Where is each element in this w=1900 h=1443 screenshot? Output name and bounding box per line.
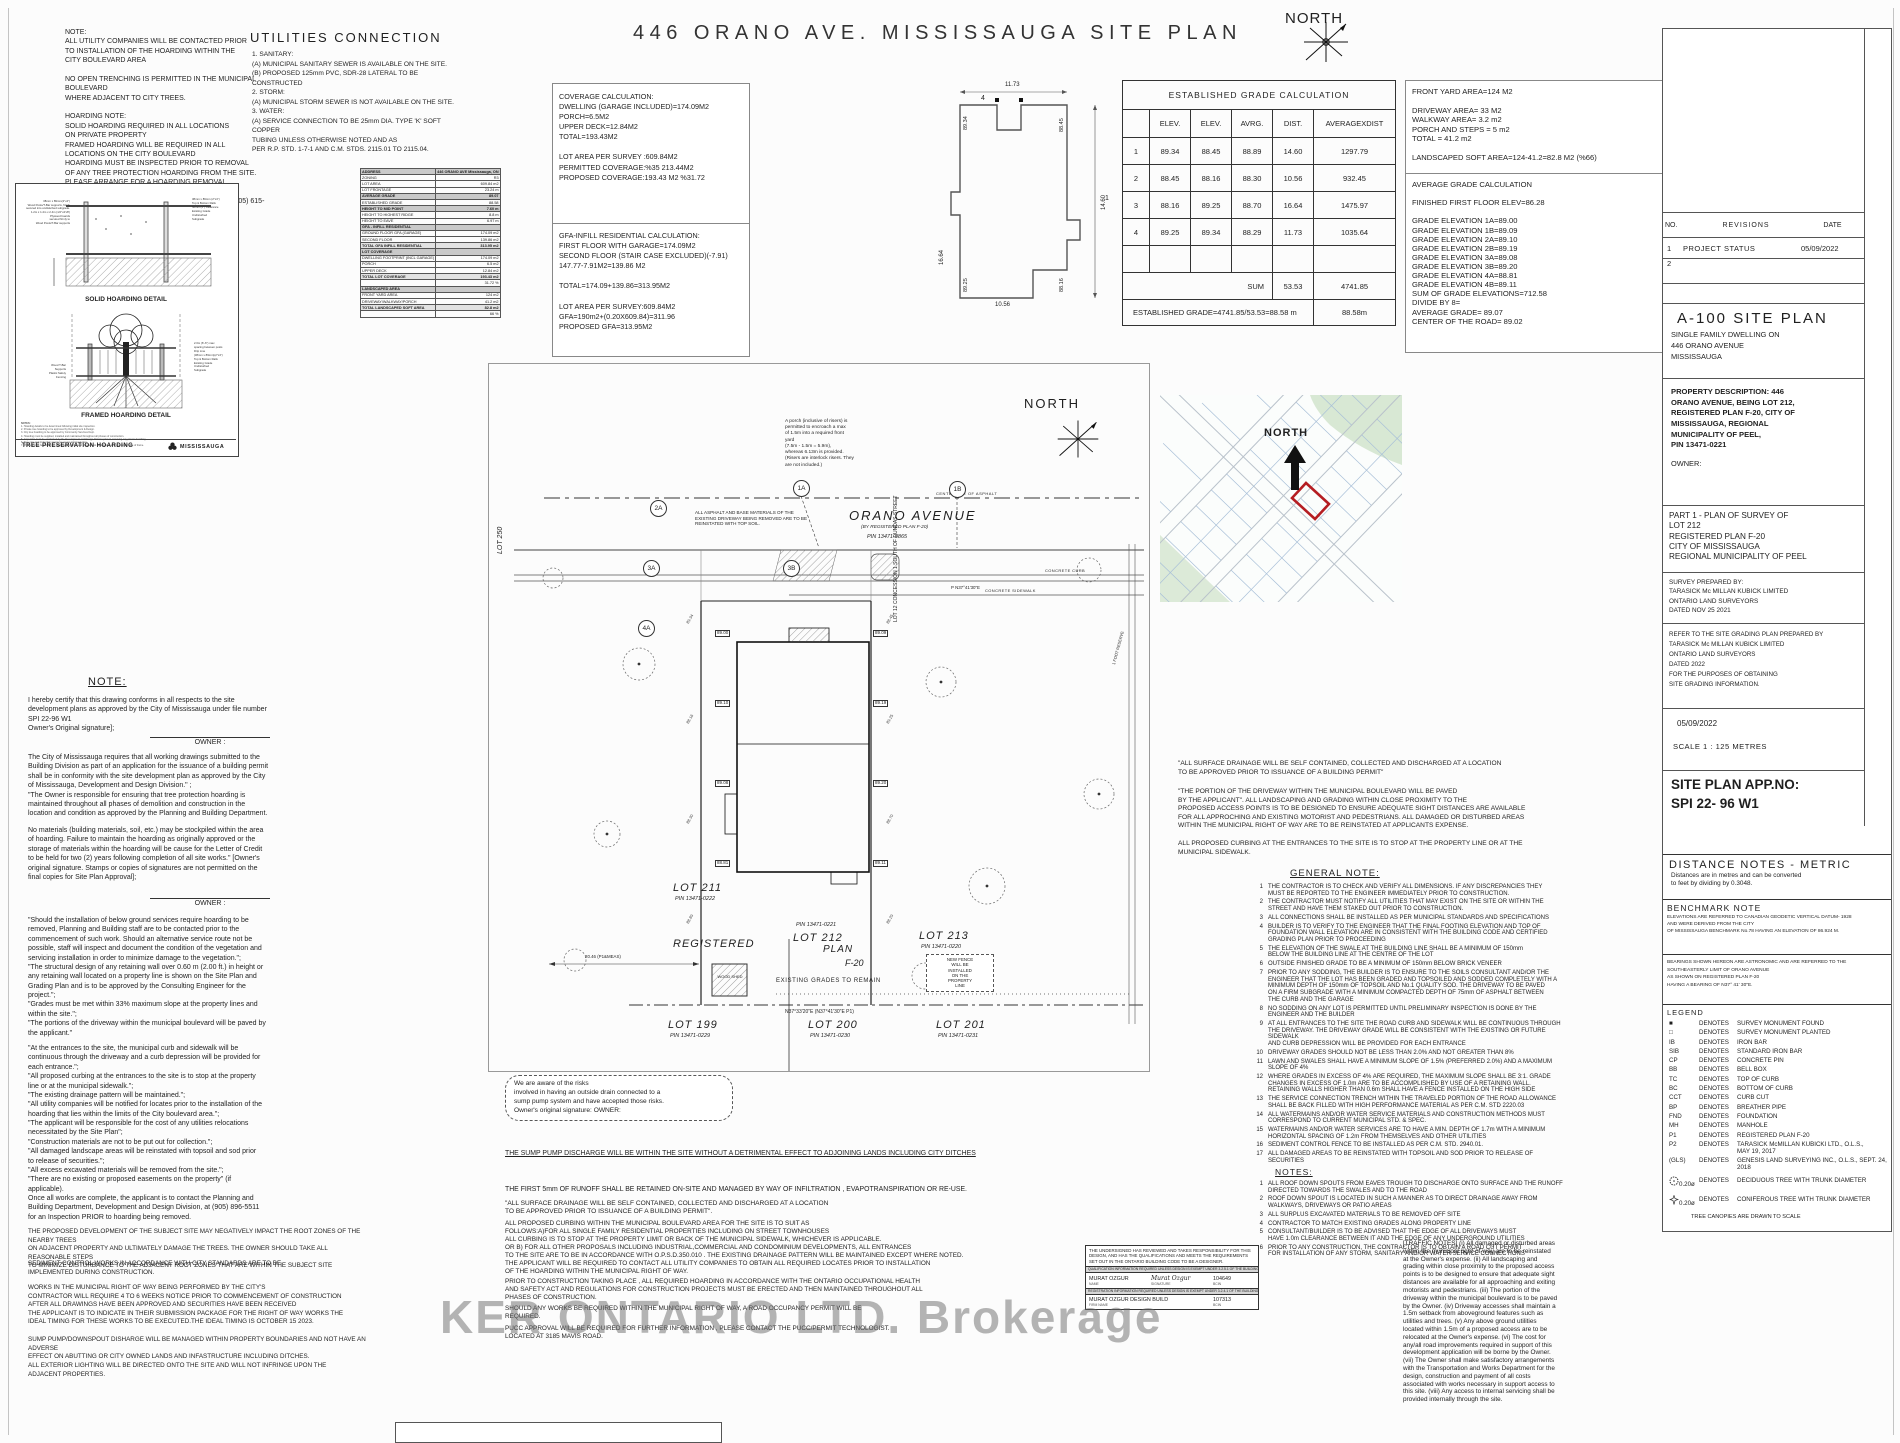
general-note-item: 16SEDIMENT CONTROL FENCE TO BE INSTALLED… — [1253, 1142, 1565, 1149]
brokerage-watermark: KER ONTARIO LTD. Brokerage — [440, 1290, 1162, 1344]
street-pin: PIN 13471-0865 — [867, 534, 907, 540]
legend-denotes: DENOTES — [1699, 1103, 1733, 1112]
owner-signature-line-1: OWNER : — [150, 737, 270, 746]
legend-tree-coniferous: 0.20ø DENOTES CONIFEROUS TREE WITH TRUNK… — [1663, 1195, 1891, 1208]
grade-sum-label: SUM — [1123, 273, 1273, 300]
legend-row: P2 DENOTES TARASICK McMILLAN KUBICKI LTD… — [1669, 1140, 1891, 1156]
grade-table-row: 189.3488.45 88.8914.601297.79 — [1123, 138, 1396, 165]
legend-footer: TREE CANOPIES ARE DRAWN TO SCALE — [1663, 1208, 1891, 1220]
plan-compass-icon — [1054, 416, 1102, 462]
lot-212-label: LOT 212 — [793, 932, 843, 944]
grade-chip-3b: 89.20 — [873, 780, 888, 787]
general-notes-list: 1THE CONTRACTOR IS TO CHECK AND VERIFY A… — [1253, 884, 1565, 1167]
legend-denotes: DENOTES — [1699, 1084, 1733, 1093]
solid-hoarding-label: SOLID HOARDING DETAIL — [56, 296, 196, 303]
coverage-calculation: COVERAGE CALCULATION: DWELLING (GARAGE I… — [553, 84, 749, 224]
surface-drainage-note: "ALL SURFACE DRAINAGE WILL BE SELF CONTA… — [505, 1200, 1065, 1216]
grade-footer: ESTABLISHED GRADE=4741.85/53.53=88.58 m — [1123, 300, 1314, 326]
benchmark-title: BENCHMARK NOTE — [1663, 900, 1891, 913]
general-note-item: 10DRIVEWAY GRADES SHOULD NOT BE LESS THA… — [1253, 1050, 1565, 1057]
lot-213-label: LOT 213 — [919, 930, 969, 942]
rev2-no: 2 — [1663, 259, 1671, 268]
legend-denotes: DENOTES — [1699, 1019, 1733, 1028]
revision-row-2: 2 — [1663, 259, 1864, 284]
legend-row: BC DENOTES BOTTOM OF CURB — [1669, 1084, 1891, 1093]
tree-hoarding-detail-box: 38mm x 89mm(2"x4") Wood Posts/T-Bar supp… — [15, 183, 239, 457]
general-note-item: 5THE ELEVATION OF THE SWALE AT THE BUILD… — [1253, 946, 1565, 959]
grade-chip-4b: 89.11 — [873, 860, 888, 867]
legend-denotes: DENOTES — [1699, 1156, 1733, 1172]
average-grade-calc: AVERAGE GRADE CALCULATION FINISHED FIRST… — [1406, 174, 1663, 332]
footprint-dim-top: 11.73 — [1005, 82, 1020, 88]
footprint-elev-ne: 88.45 — [1059, 118, 1065, 132]
title-block-panel: NO. REVISIONS DATE 1 PROJECT STATUS 05/0… — [1662, 28, 1892, 1232]
footprint-point-1: 1 — [1105, 195, 1109, 202]
sheet-right-border — [1893, 8, 1894, 1435]
asphalt-note: ALL ASPHALT AND BASE MATERIALS OF THE EX… — [695, 510, 811, 527]
lot-212-pin: PIN 13471-0221 — [796, 922, 836, 928]
solid-hoarding-right-labels: 38mm x 89mm (2"x4") Top & Bottom Rails 5… — [192, 198, 236, 221]
left-note-p5: "At the entrances to the site, the munic… — [28, 1044, 343, 1222]
legend-denotes: DENOTES — [1699, 1112, 1733, 1121]
general-note-item: 12WHERE GRADES IN EXCESS OF 4% ARE REQUI… — [1253, 1074, 1565, 1094]
gfa-calculation: GFA-INFILL RESIDENTIAL CALCULATION: FIRS… — [553, 224, 749, 339]
lot-211-pin: PIN 13471-0222 — [675, 896, 715, 902]
legend-row: ■ DENOTES SURVEY MONUMENT FOUND — [1669, 1019, 1891, 1028]
fence-note: NEW FENCE WILL BE INSTALLED ON THE PROPE… — [926, 954, 994, 992]
site-plan-sheet: 446 ORANO AVE. MISSISSAUGA SITE PLAN NOR… — [0, 0, 1900, 1443]
traffic-notes: [TRAFFIC NOTES] (i) All damaged or distu… — [1403, 1240, 1659, 1404]
grade-sum-total: 4741.85 — [1314, 273, 1396, 300]
part1-cell: PART 1 - PLAN OF SURVEY OF LOT 212 REGIS… — [1663, 506, 1864, 573]
legend-denotes: DENOTES — [1699, 1056, 1733, 1065]
framed-hoarding-left-labels: Wood T-Bar Supports Plastic Safety Fenci… — [18, 364, 66, 380]
notes-heading: NOTES: — [1275, 1167, 1313, 1177]
grade-col-elev1: ELEV. — [1150, 110, 1191, 138]
legend-tree-deciduous: 0.20ø DENOTES DECIDUOUS TREE WITH TRUNK … — [1663, 1176, 1891, 1189]
legend-row: TC DENOTES TOP OF CURB — [1669, 1075, 1891, 1084]
rev1-date: 05/09/2022 — [1801, 244, 1839, 253]
grade-col-avrg: AVRG. — [1232, 110, 1273, 138]
street-name: ORANO AVENUE — [849, 508, 977, 523]
bearing-bottom: N37°33'20"E (N37°41'30"E P1) — [785, 1009, 854, 1015]
legend-section: LEGEND ■ DENOTES SURVEY MONUMENT FOUND □… — [1663, 1004, 1891, 1232]
general-note-item: 7PRIOR TO ANY SODDING, THE BUILDER IS TO… — [1253, 970, 1565, 1004]
footprint-elev-se: 88.16 — [1059, 278, 1065, 292]
rev1-desc: PROJECT STATUS — [1683, 244, 1801, 253]
footprint-dim-left: 16.64 — [939, 250, 945, 265]
grade-footer-value: 88.58m — [1314, 300, 1396, 326]
bearing-top: P N37°41'30"E — [951, 585, 980, 590]
centerline-label: CENTERLINE OF ASPHALT — [936, 491, 997, 496]
qualification-header: THE UNDERSIGNED HAS REVIEWED AND TAKES R… — [1086, 1246, 1258, 1266]
benchmark-body: ELEVATIONS ARE REFERRED TO CANADIAN GEOD… — [1663, 913, 1891, 939]
note-item: 4CONTRACTOR TO MATCH EXISTING GRADES ALO… — [1253, 1221, 1565, 1228]
grade-table-row — [1123, 246, 1396, 273]
owner-signature-line-2: OWNER : — [150, 898, 270, 907]
legend-denotes: DENOTES — [1699, 1065, 1733, 1074]
refer-text: REFER TO THE SITE GRADING PLAN PREPARED … — [1663, 624, 1864, 690]
grade-chip-2b: 89.19 — [873, 700, 888, 707]
mid-note-3: ALL PROPOSED CURBING AT THE ENTRANCES TO… — [1178, 840, 1664, 857]
zoning-row: 66 % — [361, 311, 501, 317]
map-north-label: NORTH — [1264, 427, 1308, 439]
legend-denotes: DENOTES — [1699, 1093, 1733, 1102]
grade-col-dist: DIST. — [1273, 110, 1314, 138]
wood-shed-label: WOOD SHED — [715, 974, 745, 979]
revisions-no-col: NO. — [1663, 222, 1687, 229]
runoff-note: THE FIRST 5mm OF RUNOFF SHALL BE RETAINE… — [505, 1186, 967, 1193]
revisions-date-col: DATE — [1805, 222, 1860, 229]
note-item: 3ALL SURPLUS EXCAVATED MATERIALS TO BE R… — [1253, 1212, 1565, 1219]
lot-201-pin: PIN 13471-0231 — [938, 1033, 978, 1039]
legend-denotes: DENOTES — [1699, 1038, 1733, 1047]
framed-hoarding-right-labels: 2.0m (6'-6") max spacing between posts D… — [194, 342, 236, 373]
legend-denotes: DENOTES — [1699, 1047, 1733, 1056]
sump-risk-cloud: We are aware of the risks involved in ha… — [505, 1075, 733, 1121]
legend-denotes: DENOTES — [1699, 1140, 1733, 1156]
date-scale-cell: 05/09/2022 SCALE 1 : 125 METRES — [1663, 709, 1864, 771]
legend-row: BB DENOTES BELL BOX — [1669, 1065, 1891, 1074]
general-notes-heading: GENERAL NOTE: — [1290, 868, 1380, 879]
legend-row: FND DENOTES FOUNDATION — [1669, 1112, 1891, 1121]
general-note-item: 1THE CONTRACTOR IS TO CHECK AND VERIFY A… — [1253, 884, 1565, 897]
legend-row: CP DENOTES CONCRETE PIN — [1669, 1056, 1891, 1065]
grade-chip-1a: 89.00 — [715, 630, 730, 637]
general-note-item: 17ALL DAMAGED AREAS TO BE REINSTATED WIT… — [1253, 1151, 1565, 1164]
revisions-col: REVISIONS — [1687, 222, 1805, 229]
distance-notes-body: Distances are in metres and can be conve… — [1663, 871, 1891, 893]
legend-denotes: DENOTES — [1699, 1028, 1733, 1037]
page-title: 446 ORANO AVE. MISSISSAUGA SITE PLAN — [633, 22, 1242, 45]
utilities-list: 1. SANITARY: (A) MUNICIPAL SANITARY SEWE… — [252, 50, 467, 155]
lot-200-pin: PIN 13471-0230 — [810, 1033, 850, 1039]
grade-table-row: 489.2589.34 88.2911.731035.64 — [1123, 219, 1396, 246]
lot-211-label: LOT 211 — [673, 882, 722, 894]
footprint-elev-nw: 89.34 — [963, 116, 969, 130]
left-note-p10: ALL EXTERIOR LIGHTING WILL BE DIRECTED O… — [28, 1362, 373, 1379]
plan-word-label: PLAN — [823, 944, 853, 955]
benchmark-section: BENCHMARK NOTE ELEVATIONS ARE REFERRED T… — [1663, 899, 1891, 939]
curbing-note: ALL PROPOSED CURBING WITHIN THE MUNICIPA… — [505, 1220, 1125, 1276]
registered-label: REGISTERED — [673, 938, 755, 950]
general-note-item: 14ALL WATERMAINS AND/OR WATER SERVICE MA… — [1253, 1112, 1565, 1125]
marker-1a: 1A — [793, 480, 810, 497]
note-item: 1ALL ROOF DOWN SPOUTS FROM EAVES TROUGH … — [1253, 1181, 1565, 1194]
legend-row: BP DENOTES BREATHER PIPE — [1669, 1103, 1891, 1112]
grade-sum-dist: 53.53 — [1273, 273, 1314, 300]
framed-hoarding-label: FRAMED HOARDING DETAIL — [51, 412, 201, 419]
left-note-p3: No materials (building materials, soil, … — [28, 826, 338, 882]
lot-201-label: LOT 201 — [936, 1019, 986, 1031]
zoning-matrix-table: ADDRESS446 ORANO AVE Mississauga, ONZONI… — [360, 168, 501, 318]
legend-denotes: DENOTES — [1699, 1121, 1733, 1130]
marker-2a: 2A — [650, 500, 667, 517]
general-note-item: 15WATERMAINS AND/OR WATER SERVICES ARE T… — [1253, 1127, 1565, 1140]
signature-label: SIGNATURE — [1151, 1282, 1213, 1286]
solid-hoarding-left-labels: 38mm x 89mm(2"x4") Wood Posts/T-Bar supp… — [18, 200, 70, 225]
general-note-item: 4BUILDER IS TO VERIFY TO THE ENGINEER TH… — [1253, 924, 1565, 944]
established-grade-table: ESTABLISHED GRADE CALCULATION ELEV. ELEV… — [1122, 80, 1396, 326]
legend-row: CCT DENOTES CURB CUT — [1669, 1093, 1891, 1102]
sheet-number-cell: A-100 SITE PLAN SINGLE FAMILY DWELLING O… — [1663, 304, 1864, 379]
legend-row: P1 DENOTES REGISTERED PLAN F-20 — [1669, 1131, 1891, 1140]
grade-chip-4a: 88.81 — [715, 860, 730, 867]
rev1-no: 1 — [1663, 244, 1683, 253]
sheet-left-border — [8, 8, 9, 1435]
bearings-note: BEARINGS SHOWN HEREON ARE ASTRONOMIC AND… — [1663, 955, 1891, 993]
sidewalk-label: CONCRETE SIDEWALK — [985, 588, 1036, 593]
grade-table-row: 388.1689.25 88.7016.641475.97 — [1123, 192, 1396, 219]
survey-text: SURVEY PREPARED BY: TARASICK Mc MILLAN K… — [1663, 573, 1864, 615]
deciduous-tree-icon — [1669, 1176, 1679, 1186]
sheet-subtitle: SINGLE FAMILY DWELLING ON 446 ORANO AVEN… — [1663, 329, 1864, 362]
curb-label: CONCRETE CURB — [1045, 568, 1085, 573]
mississauga-logo-icon — [168, 442, 177, 451]
left-note-p9: SUMP PUMP/DOWNSPOUT DISHARGE WILL BE MAN… — [28, 1336, 373, 1362]
grade-chip-1b: 89.09 — [873, 630, 888, 637]
front-yard-box: FRONT YARD AREA=124 M2 DRIVEWAY AREA= 33… — [1405, 80, 1664, 353]
app-no-cell: SITE PLAN APP.NO: SPI 22- 96 W1 — [1663, 771, 1864, 825]
title-block-empty-box — [1663, 29, 1864, 213]
lot-200-label: LOT 200 — [808, 1019, 858, 1031]
general-note-item: 9AT ALL ENTRANCES TO THE SITE THE ROAD C… — [1253, 1021, 1565, 1048]
existing-grades-label: EXISTING GRADES TO REMAIN — [776, 978, 881, 984]
qualification-band: QUALIFICATION INFORMATION REQUIRED UNLES… — [1086, 1266, 1258, 1273]
marker-3a: 3A — [643, 560, 660, 577]
grade-table-title: ESTABLISHED GRADE CALCULATION — [1123, 81, 1396, 110]
lot-250-label: LOT 250 — [497, 527, 504, 554]
grade-chip-3a: 89.08 — [715, 780, 730, 787]
grade-chip-2a: 89.10 — [715, 700, 730, 707]
general-note-item: 2THE CONTRACTOR MUST NOTIFY ALL UTILITIE… — [1253, 899, 1565, 912]
app-no-value: SPI 22- 96 W1 — [1663, 792, 1864, 811]
left-note-p2: The City of Mississauga requires that al… — [28, 753, 338, 819]
distance-notes-title: DISTANCE NOTES - METRIC — [1663, 855, 1891, 871]
legend-row: IB DENOTES IRON BAR — [1669, 1038, 1891, 1047]
lot-199-label: LOT 199 — [668, 1019, 718, 1031]
dim-2046: 20.46 (P1&MEAS) — [585, 954, 621, 959]
footprint-elev-sw: 89.25 — [963, 278, 969, 292]
revision-row-1: 1 PROJECT STATUS 05/09/2022 — [1663, 238, 1864, 259]
distance-notes-section: DISTANCE NOTES - METRIC Distances are in… — [1663, 854, 1891, 893]
part1-text: PART 1 - PLAN OF SURVEY OF LOT 212 REGIS… — [1663, 506, 1864, 562]
note-item: 2ROOF DOWN SPOUT IS LOCATED IN SUCH A MA… — [1253, 1196, 1565, 1209]
legend-denotes: DENOTES — [1699, 1176, 1733, 1189]
refer-cell: REFER TO THE SITE GRADING PLAN PREPARED … — [1663, 624, 1864, 709]
compass-rose-icon — [1300, 18, 1352, 66]
left-note-heading: NOTE: — [88, 676, 127, 688]
porch-note: A porch (inclusive of risers) is permitt… — [785, 419, 905, 469]
concession-label: LOT 12 CONCESSION 1 SOUTH OF DUNDAS STRE… — [893, 495, 899, 622]
survey-cell: SURVEY PREPARED BY: TARASICK Mc MILLAN K… — [1663, 573, 1864, 624]
legend-row: (GLS) DENOTES GENESIS LAND SURVEYING INC… — [1669, 1156, 1891, 1172]
revisions-header: NO. REVISIONS DATE — [1663, 213, 1864, 238]
left-note-p1: I hereby certify that this drawing confo… — [28, 696, 338, 734]
grade-col-blank — [1123, 110, 1150, 138]
site-plan-geometry — [489, 364, 1149, 1071]
marker-3b: 3B — [783, 560, 800, 577]
issue-date: 05/09/2022 — [1663, 709, 1864, 728]
left-note-p4: "Should the installation of below ground… — [28, 916, 343, 1038]
front-yard-calc: FRONT YARD AREA=124 M2 DRIVEWAY AREA= 33… — [1406, 81, 1663, 174]
mississauga-brand: MISSISSAUGA — [180, 444, 224, 450]
legend-denotes: DENOTES — [1699, 1195, 1733, 1208]
general-note-item: 3ALL CONNECTIONS SHALL BE INSTALLED AS P… — [1253, 915, 1565, 922]
bcin-label: BCIN — [1213, 1282, 1221, 1286]
firm-bcin-label: BCIN — [1213, 1303, 1221, 1307]
legend-row: MH DENOTES MANHOLE — [1669, 1121, 1891, 1130]
sheet-number: A-100 SITE PLAN — [1663, 304, 1864, 329]
property-description-cell: PROPERTY DESCRIPTION: 446 ORANO AVENUE, … — [1663, 379, 1864, 506]
left-note-p7: SEDIMENT CONTROL WORKS IN ACCORDANCE WIT… — [28, 1260, 368, 1277]
legend-denotes: DENOTES — [1699, 1075, 1733, 1084]
footprint-dim-bottom: 10.56 — [995, 302, 1010, 308]
tree-hoarding-footer: TREE PRESERVATION HOARDING — [22, 443, 133, 449]
legend-row: □ DENOTES SURVEY MONUMENT PLANTED — [1669, 1028, 1891, 1037]
left-note-p8: WORKS IN THE MUNICIPAL RIGHT OF WAY BEIN… — [28, 1284, 373, 1327]
general-note-item: 6OUTSIDE FINISHED GRADE TO BE A MINIMUM … — [1253, 961, 1565, 968]
mid-note-2: "THE PORTION OF THE DRIVEWAY WITHIN THE … — [1178, 788, 1664, 831]
utilities-title: UTILITIES CONNECTION — [250, 30, 442, 45]
legend-row: SIB DENOTES STANDARD IRON BAR — [1669, 1047, 1891, 1056]
owner-label: OWNER: — [1663, 451, 1864, 468]
footprint-diagram: 11.73 14.60 10.56 16.64 4 1 89.34 88.45 … — [935, 70, 1120, 325]
f20-label: F-20 — [845, 958, 864, 968]
grade-col-avgxdist: AVERAGEXDIST — [1314, 110, 1396, 138]
sump-discharge-note: THE SUMP PUMP DISCHARGE WILL BE WITHIN T… — [505, 1150, 976, 1157]
coverage-calc-box: COVERAGE CALCULATION: DWELLING (GARAGE I… — [552, 83, 750, 357]
footprint-point-4: 4 — [981, 95, 985, 102]
legend-title: LEGEND — [1663, 1005, 1891, 1019]
general-note-item: 13THE SERVICE CONNECTION TRENCH WITHIN T… — [1253, 1096, 1565, 1109]
mid-note-1: "ALL SURFACE DRAINAGE WILL BE SELF CONTA… — [1178, 760, 1664, 777]
property-description: PROPERTY DESCRIPTION: 446 ORANO AVENUE, … — [1663, 379, 1864, 451]
revision-row-empty — [1663, 284, 1864, 304]
name-label: NAME — [1089, 1282, 1151, 1286]
designer-signature: Murat Ozgur — [1151, 1275, 1213, 1282]
grade-table-row: 288.4588.16 88.3010.56932.45 — [1123, 165, 1396, 192]
plan-north-label: NORTH — [1024, 396, 1080, 411]
bearings-section: BEARINGS SHOWN HEREON ARE ASTRONOMIC AND… — [1663, 954, 1891, 993]
scale-label: SCALE 1 : 125 METRES — [1663, 728, 1864, 751]
coniferous-tree-icon — [1669, 1195, 1679, 1205]
app-no-label: SITE PLAN APP.NO: — [1663, 771, 1864, 792]
general-note-item: 8NO SODDING ON ANY LOT IS PERMITTED UNTI… — [1253, 1006, 1565, 1019]
lot-199-pin: PIN 13471-0229 — [670, 1033, 710, 1039]
marker-4a: 4A — [638, 620, 655, 637]
grade-col-elev2: ELEV. — [1191, 110, 1232, 138]
site-plan-drawing: NORTH A porch (inclusive of risers) is p… — [488, 363, 1150, 1072]
marker-1b: 1B — [949, 481, 966, 498]
legend-denotes: DENOTES — [1699, 1131, 1733, 1140]
lot-213-pin: PIN 13471-0220 — [921, 944, 961, 950]
key-map: NORTH — [1160, 395, 1402, 602]
bottom-strip — [395, 1422, 722, 1443]
general-note-item: 11LAWN AND SWALES SHALL HAVE A MINIMUM S… — [1253, 1059, 1565, 1072]
